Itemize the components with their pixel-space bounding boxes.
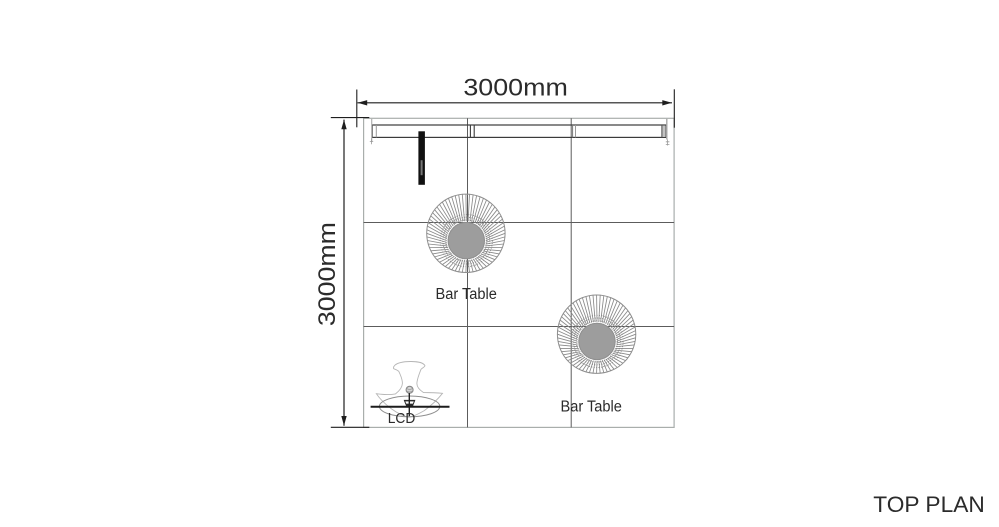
svg-text:Bar Table: Bar Table xyxy=(435,286,497,303)
svg-text:Bar Table: Bar Table xyxy=(560,399,622,416)
svg-text:3000mm: 3000mm xyxy=(463,74,568,101)
svg-text:TOP PLAN: TOP PLAN xyxy=(873,492,985,517)
svg-text:3000mm: 3000mm xyxy=(314,222,341,326)
svg-text:LCD: LCD xyxy=(388,411,416,427)
